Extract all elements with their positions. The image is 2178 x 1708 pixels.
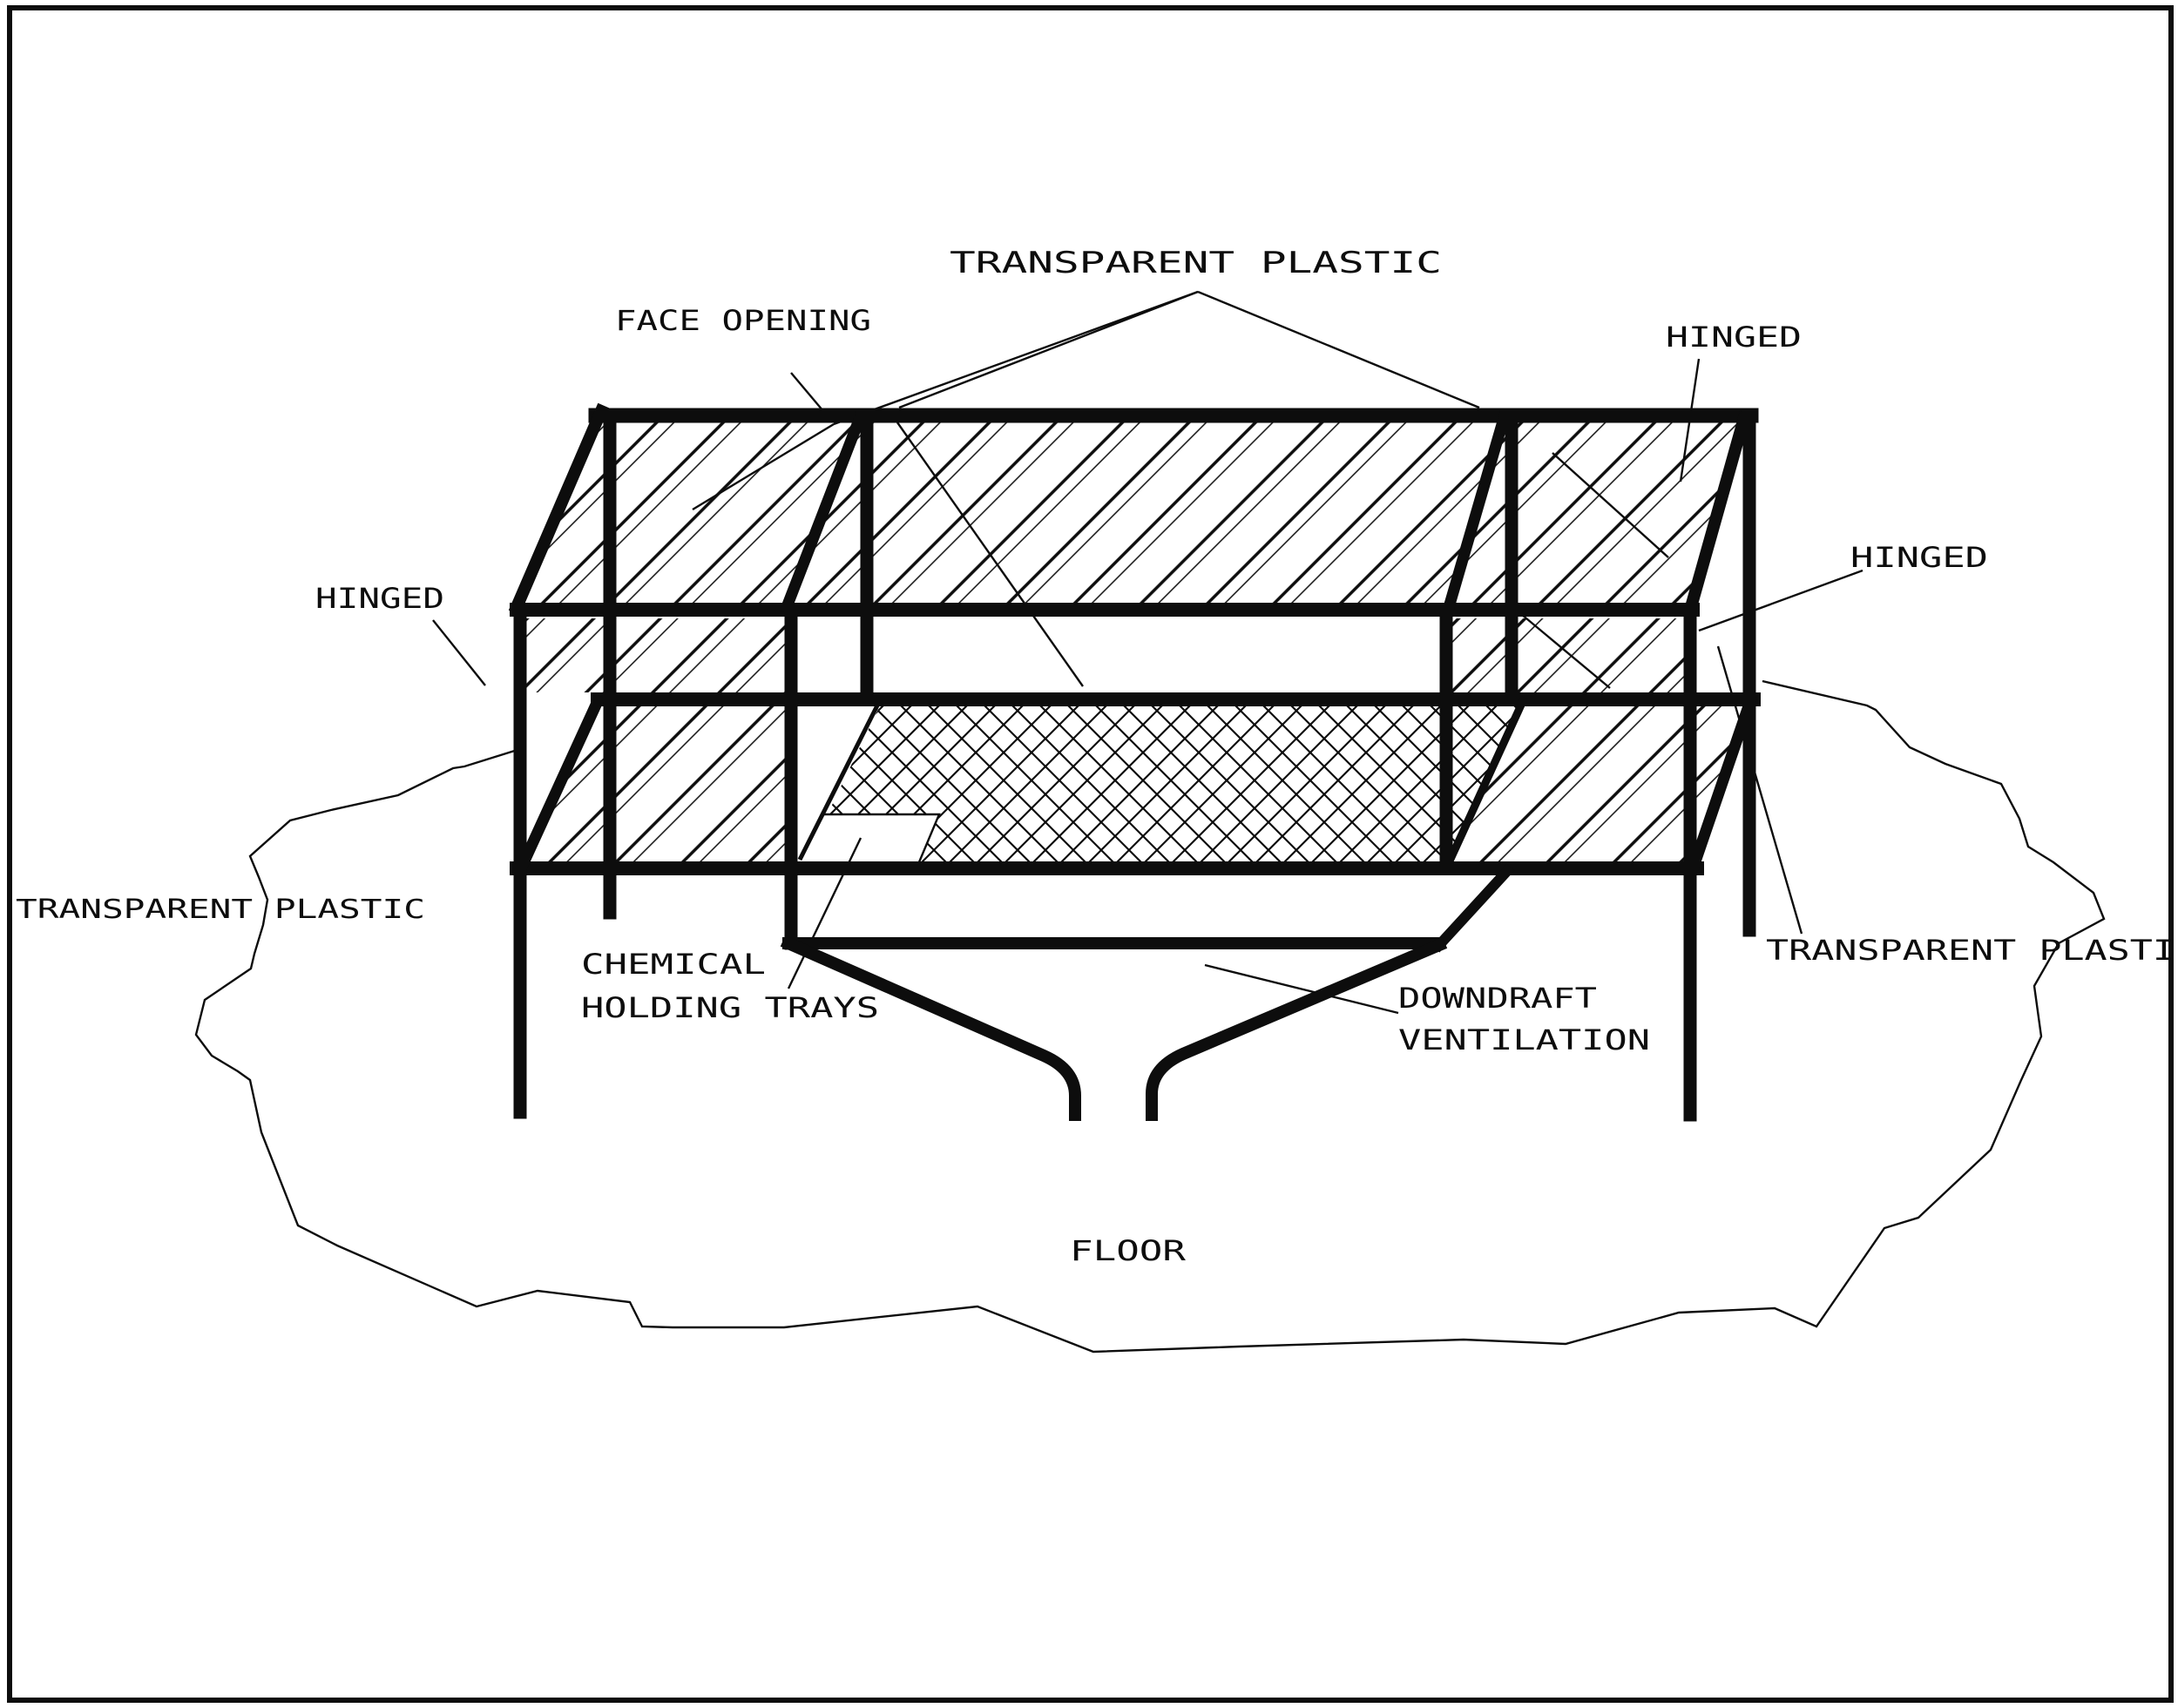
label-face-opening: FACE OPENING: [615, 304, 871, 337]
label-downdraft: DOWNDRAFT: [1398, 982, 1597, 1015]
drawing-page: TRANSPARENT PLASTIC FACE OPENING HINGED …: [0, 0, 2178, 1708]
label-hinged-right: HINGED: [1850, 541, 1988, 574]
label-ventilation: VENTILATION: [1398, 1023, 1650, 1057]
label-transparent-plastic-right: TRANSPARENT PLASTI: [1766, 934, 2175, 967]
hatch-upper-band: [517, 421, 1745, 604]
label-chemical: CHEMICAL: [581, 948, 766, 981]
label-transparent-plastic-top: TRANSPARENT PLASTIC: [950, 246, 1442, 280]
mesh-work-surface: [798, 704, 1520, 868]
technical-diagram: TRANSPARENT PLASTIC FACE OPENING HINGED …: [0, 0, 2178, 1708]
label-transparent-plastic-left: TRANSPARENT PLASTIC: [16, 895, 425, 925]
hatch-mid-left: [523, 618, 791, 692]
label-hinged-left: HINGED: [315, 582, 444, 615]
label-holding-trays: HOLDING TRAYS: [581, 991, 879, 1024]
label-floor: FLOOR: [1070, 1234, 1187, 1267]
label-hinged-top-right: HINGED: [1666, 321, 1802, 354]
